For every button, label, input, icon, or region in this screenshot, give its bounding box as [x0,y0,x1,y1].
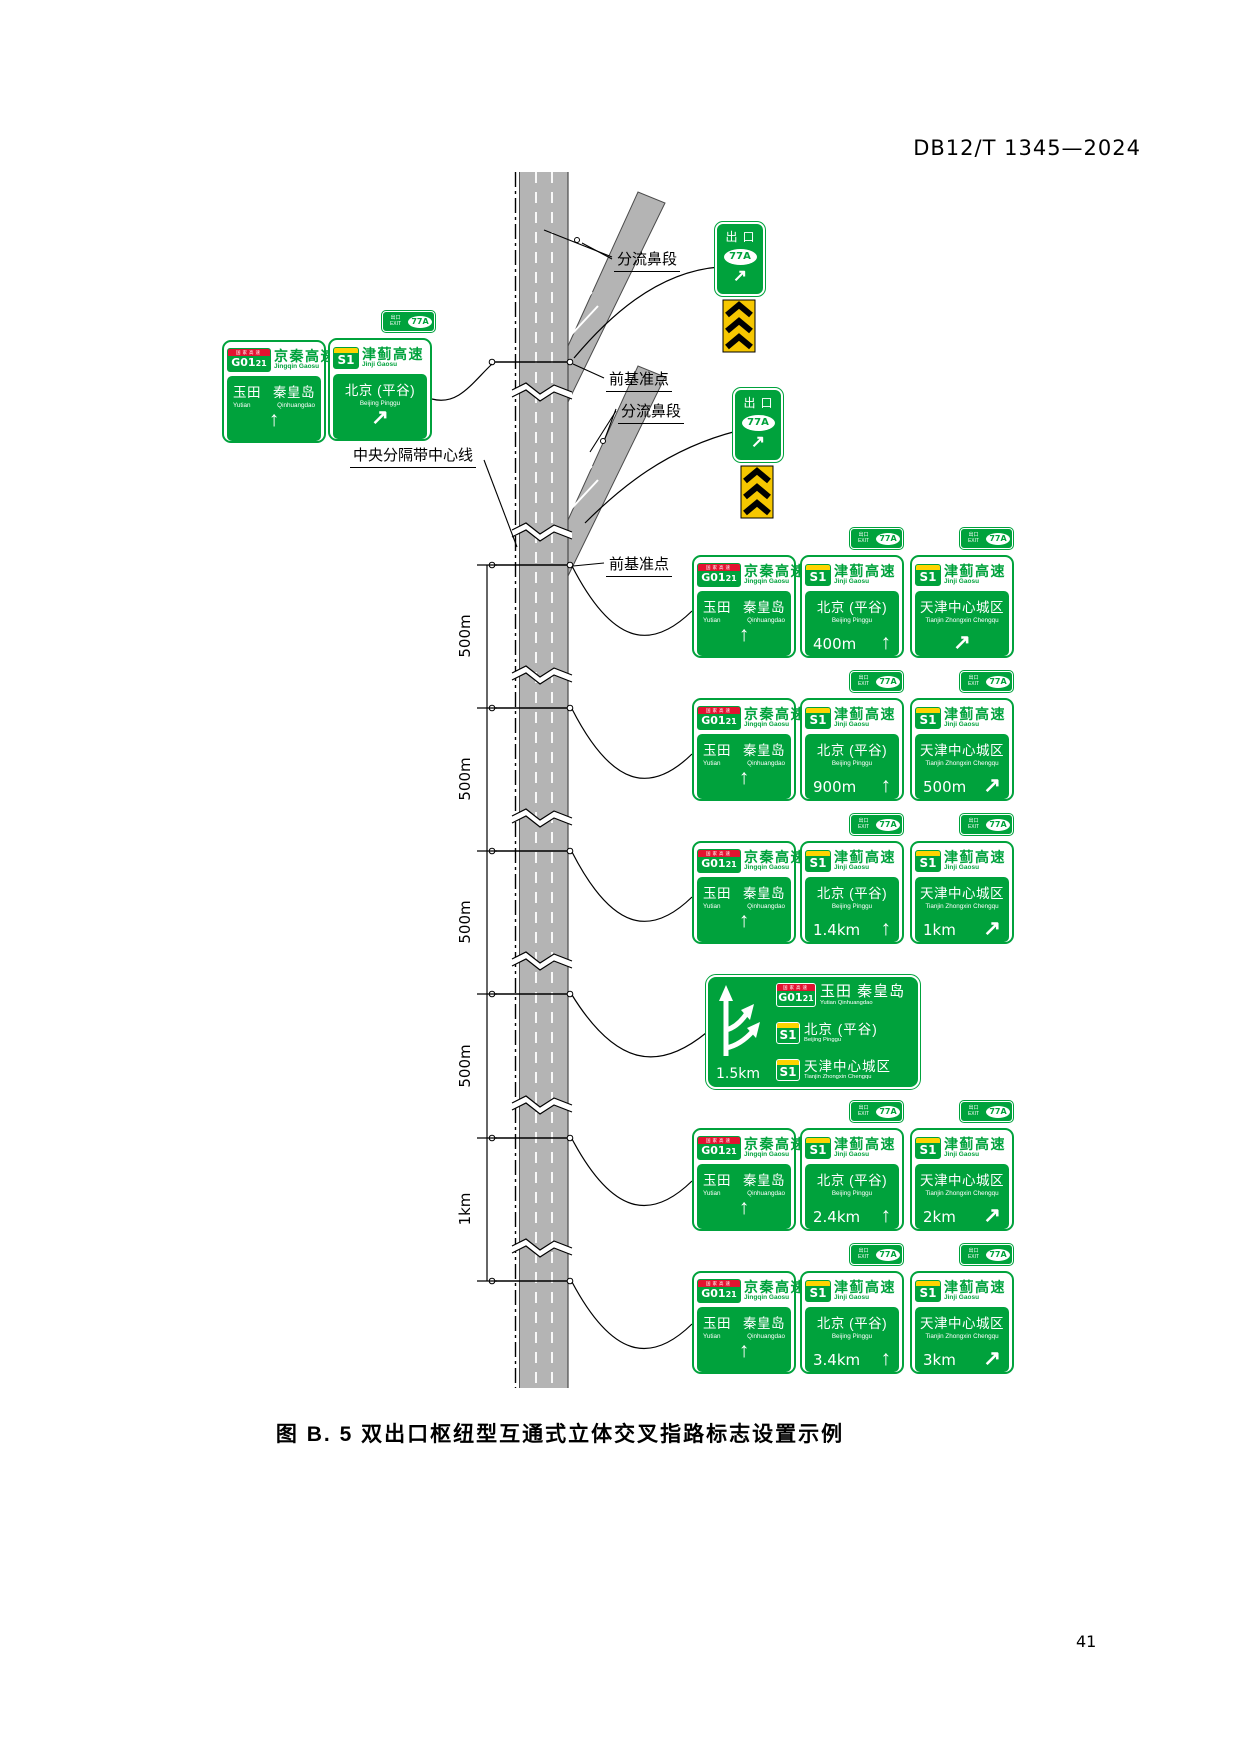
exit-number: 77A [876,533,900,545]
s1-shield: S1 [805,1137,831,1159]
s1-shield: S1 [805,850,831,872]
distance-value: 1.5km [716,1066,760,1082]
exit-number-plaque: 出口EXIT77A [960,528,1013,549]
distance-value: 2.4km [813,1208,860,1226]
ramp-exit-sign-1: 出口 77A ↗ [715,222,765,296]
g0121-shield: 国家高速G0121 [697,706,741,730]
distance-value: 3km [923,1351,956,1369]
exit-number-plaque: 出口EXIT77A [850,528,903,549]
s1-shield: S1 [915,850,941,872]
guide-sign-beijing: S1津蓟高速Jinji Gaosu 北京 (平谷)Beijing Pinggu3… [800,1271,904,1374]
hazard-marker-post-1 [722,299,756,353]
guide-sign-beijing: S1津蓟高速Jinji Gaosu 北京 (平谷)Beijing Pinggu9… [800,698,904,801]
guide-sign-beijing: S1津蓟高速Jinji Gaosu 北京 (平谷)Beijing Pinggu4… [800,555,904,658]
nose-point-1 [575,238,580,243]
g0121-shield: 国家高速G0121 [697,1279,741,1303]
s1-shield: S1 [776,1022,800,1044]
g0121-shield: 国家高速G0121 [697,849,741,873]
exit-number: 77A [986,1249,1010,1261]
document-page: DB12/T 1345—2024 [0,0,1241,1755]
exit-number: 77A [986,819,1010,831]
up-right-arrow-icon: ↗ [953,632,971,653]
straight-arrow-icon: ↑ [703,1340,785,1369]
g0121-shield: 国家高速G0121 [697,1136,741,1160]
up-right-arrow-icon: ↗ [983,918,1001,939]
exit-number-plaque: 出口EXIT77A [960,1244,1013,1265]
up-right-arrow-icon: ↗ [983,1205,1001,1226]
scale-label-5: 1km [456,1193,474,1226]
exit-number: 77A [408,316,432,328]
g0121-shield: 国家高速G0121 [697,563,741,587]
up-right-arrow-icon: ↗ [983,1348,1001,1369]
up-right-arrow-icon: ↗ [983,775,1001,796]
guide-sign-tianjin: S1津蓟高速Jinji Gaosu 天津中心城区Tianjin Zhongxin… [910,1128,1014,1231]
exit-ramp-2 [568,366,665,576]
distance-value: 500m [923,778,966,796]
branch-arrow-icon [714,982,770,1060]
guide-sign-beijing: S1 津蓟高速Jinji Gaosu 北京 (平谷) Beijing Pingg… [328,338,432,441]
guide-sign-jingqin: 国家高速G0121 京秦高速Jingqin Gaosu 玉田秦皇岛 Yutian… [222,340,326,443]
exit-number-plaque: 出口EXIT77A [960,1101,1013,1122]
up-right-arrow-icon: ↗ [339,407,421,436]
distance-value: 3.4km [813,1351,860,1369]
sign-group-2.4km: 出口EXIT77A 出口EXIT77A 国家高速G0121京秦高速Jingqin… [692,1101,1022,1233]
scale-label-1: 500m [456,614,474,657]
straight-arrow-icon: ↑ [881,1205,892,1226]
exit-number-plaque: 出口EXIT 77A [382,311,435,332]
guide-sign-beijing: S1津蓟高速Jinji Gaosu 北京 (平谷)Beijing Pinggu1… [800,841,904,944]
straight-arrow-icon: ↑ [703,1197,785,1226]
guide-sign-tianjin: S1津蓟高速Jinji Gaosu 天津中心城区Tianjin Zhongxin… [910,841,1014,944]
hazard-marker-post-2 [740,465,774,519]
ramp-exit-sign-2: 出口 77A ↗ [733,388,783,462]
up-right-arrow-icon: ↗ [735,433,781,450]
s1-shield: S1 [915,707,941,729]
distance-value: 2km [923,1208,956,1226]
label-diverge-nose-2: 分流鼻段 [618,400,684,424]
scale-label-4: 500m [456,1044,474,1087]
scale-label-2: 500m [456,757,474,800]
advance-guide-sign-1.5km: 1.5km 国家高速G0121 玉田 秦皇岛Yutian Qinhuangdao… [706,975,920,1089]
distance-scale [477,565,497,1281]
label-diverge-nose-1: 分流鼻段 [614,248,680,272]
s1-shield: S1 [915,1137,941,1159]
straight-arrow-icon: ↑ [703,624,785,653]
guide-sign-jingqin: 国家高速G0121京秦高速Jingqin Gaosu 玉田秦皇岛YutianQi… [692,1271,796,1374]
exit-number: 77A [876,1106,900,1118]
guide-sign-tianjin: S1津蓟高速Jinji Gaosu 天津中心城区Tianjin Zhongxin… [910,555,1014,658]
page-number: 41 [1076,1632,1096,1651]
g0121-shield: 国家高速G0121 [776,983,816,1007]
distance-value: 900m [813,778,856,796]
s1-shield: S1 [333,347,359,369]
sign-group-1.4km: 出口EXIT77A 出口EXIT77A 国家高速G0121京秦高速Jingqin… [692,814,1022,946]
exit-number: 77A [876,819,900,831]
s1-shield: S1 [776,1059,800,1081]
exit-label: 出口 [735,394,781,411]
exit-number-plaque: 出口EXIT77A [850,814,903,835]
s1-shield: S1 [805,564,831,586]
scale-label-3: 500m [456,900,474,943]
distance-value: 1.4km [813,921,860,939]
s1-shield: S1 [915,1280,941,1302]
s1-shield: S1 [805,1280,831,1302]
exit-number: 77A [742,415,775,431]
guide-sign-tianjin: S1津蓟高速Jinji Gaosu 天津中心城区Tianjin Zhongxin… [910,1271,1014,1374]
distance-value: 1km [923,921,956,939]
exit-number: 77A [724,249,757,265]
straight-arrow-icon: ↑ [881,775,892,796]
sign-group-400m: 出口EXIT77A 出口EXIT77A 国家高速G0121京秦高速Jingqin… [692,528,1022,660]
s1-shield: S1 [915,564,941,586]
exit-number: 77A [986,533,1010,545]
straight-arrow-icon: ↑ [703,767,785,796]
exit-number-plaque: 出口EXIT77A [850,1101,903,1122]
sign-group-3.4km: 出口EXIT77A 出口EXIT77A 国家高速G0121京秦高速Jingqin… [692,1244,1022,1376]
guide-sign-jingqin: 国家高速G0121京秦高速Jingqin Gaosu 玉田秦皇岛YutianQi… [692,1128,796,1231]
guide-sign-jingqin: 国家高速G0121京秦高速Jingqin Gaosu 玉田秦皇岛YutianQi… [692,841,796,944]
straight-arrow-icon: ↑ [881,918,892,939]
exit-number-plaque: 出口EXIT77A [960,671,1013,692]
label-datum-point-2: 前基准点 [606,553,672,577]
sign-pair-exit-direct: 出口EXIT 77A 国家高速G0121 京秦高速Jingqin Gaosu 玉… [222,311,442,443]
figure-caption: 图 B. 5 双出口枢纽型互通式立体交叉指路标志设置示例 [60,1418,1060,1448]
distance-value: 400m [813,635,856,653]
label-median-centerline: 中央分隔带中心线 [350,444,476,468]
exit-number-plaque: 出口EXIT77A [850,671,903,692]
guide-sign-tianjin: S1津蓟高速Jinji Gaosu 天津中心城区Tianjin Zhongxin… [910,698,1014,801]
guide-sign-jingqin: 国家高速G0121京秦高速Jingqin Gaosu 玉田秦皇岛YutianQi… [692,698,796,801]
exit-number-plaque: 出口EXIT77A [960,814,1013,835]
nose-point-2 [601,439,606,444]
guide-sign-beijing: S1津蓟高速Jinji Gaosu 北京 (平谷)Beijing Pinggu2… [800,1128,904,1231]
exit-label: 出口 [717,228,763,245]
sign-group-900m: 出口EXIT77A 出口EXIT77A 国家高速G0121京秦高速Jingqin… [692,671,1022,803]
straight-arrow-icon: ↑ [233,409,315,438]
g0121-shield: 国家高速G0121 [227,348,271,372]
exit-number: 77A [876,1249,900,1261]
straight-arrow-icon: ↑ [703,910,785,939]
label-datum-point-1: 前基准点 [606,368,672,392]
straight-arrow-icon: ↑ [881,632,892,653]
main-road [519,172,568,1388]
up-right-arrow-icon: ↗ [717,267,763,284]
exit-number: 77A [876,676,900,688]
guide-sign-jingqin: 国家高速G0121京秦高速Jingqin Gaosu 玉田秦皇岛YutianQi… [692,555,796,658]
exit-number: 77A [986,1106,1010,1118]
straight-arrow-icon: ↑ [881,1348,892,1369]
exit-number-plaque: 出口EXIT77A [850,1244,903,1265]
s1-shield: S1 [805,707,831,729]
exit-number: 77A [986,676,1010,688]
